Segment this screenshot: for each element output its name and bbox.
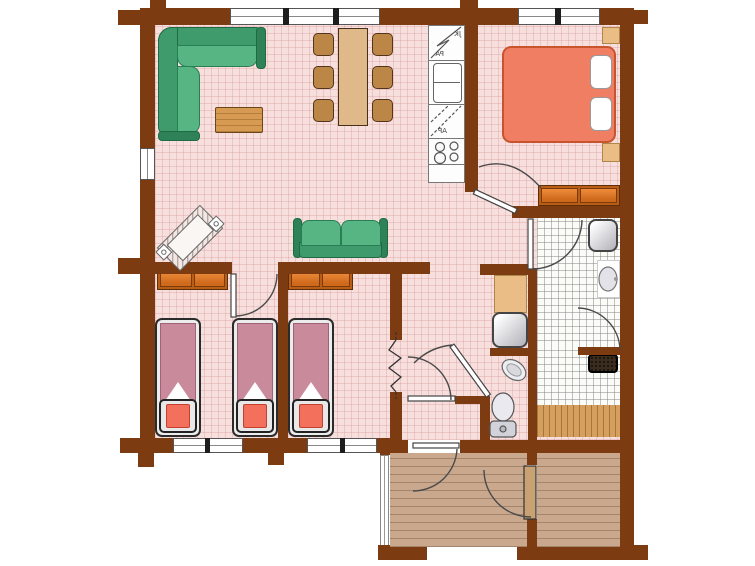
wall-segment	[140, 8, 230, 25]
wall-segment	[278, 274, 288, 438]
fridge-unit	[433, 63, 462, 103]
log-end	[634, 545, 648, 560]
kitchen-unit-divider	[428, 104, 465, 105]
wall-segment	[140, 180, 155, 438]
wall-segment	[140, 438, 173, 453]
kitchen-unit-divider	[428, 138, 465, 139]
washing-machine-hall	[492, 312, 528, 348]
dresser-door	[541, 188, 578, 203]
window-mullion	[205, 438, 210, 453]
log-end	[150, 0, 166, 10]
log-end	[378, 545, 390, 560]
coffee-table	[215, 107, 263, 133]
single-bed-1	[155, 318, 201, 437]
wall-segment	[490, 348, 528, 356]
bed-head-cushion	[299, 404, 323, 428]
bed-head-frame	[292, 399, 330, 433]
log-end	[138, 453, 154, 467]
bed-head-frame	[236, 399, 274, 433]
single-bed-2	[232, 318, 278, 437]
kitchen-unit-divider	[428, 164, 465, 165]
wall-segment	[388, 547, 427, 560]
bed-pillow	[590, 97, 612, 131]
dining-table	[338, 28, 368, 126]
dining-chair	[372, 66, 393, 89]
wall-segment	[390, 274, 402, 340]
bed-pillow	[590, 55, 612, 89]
wall-segment	[480, 396, 490, 440]
hall-cabinet	[494, 275, 527, 313]
window-mullion	[340, 438, 345, 453]
wall-segment	[620, 25, 634, 560]
wall-segment	[517, 547, 634, 560]
washbasin-counter	[597, 260, 620, 298]
bed-head-cushion	[166, 404, 190, 428]
corner-sofa-armrest-right	[256, 27, 266, 69]
bed-head-cushion	[243, 404, 267, 428]
wall-segment	[243, 438, 307, 453]
wall-segment	[455, 396, 480, 404]
wall-segment	[527, 453, 537, 465]
nightstand-bottom	[602, 143, 620, 162]
sofa-seat-right	[341, 220, 381, 246]
wall-segment	[600, 8, 634, 25]
wall-segment	[480, 264, 530, 275]
bedroom-dresser	[538, 185, 620, 206]
sauna-heater	[588, 354, 618, 373]
log-end	[460, 0, 478, 8]
log-end	[268, 453, 284, 465]
log-end	[634, 10, 648, 24]
wall-segment	[465, 8, 478, 192]
wall-segment	[155, 262, 232, 274]
dining-chair	[313, 66, 334, 89]
washing-machine-bathroom	[588, 219, 618, 252]
dining-chair	[313, 33, 334, 56]
wall-segment	[380, 440, 390, 455]
wall-segment	[380, 8, 518, 25]
corner-sofa-back-left	[158, 27, 178, 135]
porch-floor-right	[537, 453, 620, 547]
corner-sofa-seat-vertical	[177, 66, 200, 134]
window-mullion	[555, 8, 561, 25]
window	[140, 148, 155, 180]
window-mullion	[333, 8, 339, 25]
wall-segment	[278, 262, 430, 274]
dresser-door	[580, 188, 617, 203]
sofa-seat-left	[301, 220, 341, 246]
wall-segment	[390, 440, 408, 453]
log-end	[120, 438, 140, 453]
wall-segment	[512, 206, 620, 218]
single-bed-3	[288, 318, 334, 437]
wall-segment	[460, 440, 634, 453]
kitchen-unit-divider	[428, 60, 465, 61]
wall-segment	[578, 347, 620, 355]
wall-segment	[528, 268, 537, 355]
wall-segment	[390, 392, 402, 440]
porch-floor-left	[390, 453, 527, 547]
sauna-bench	[537, 405, 620, 437]
log-end	[118, 258, 140, 274]
wall-segment	[140, 25, 155, 148]
floor-plan: JK PA AP	[0, 0, 755, 566]
porch-edge-rail	[380, 455, 389, 547]
bed-head-frame	[159, 399, 197, 433]
corner-sofa-armrest-bottom	[158, 131, 200, 141]
dining-chair	[372, 33, 393, 56]
log-end	[118, 10, 140, 25]
nightstand-top	[602, 27, 620, 44]
corner-sofa-seat	[177, 45, 258, 67]
fridge-unit-divider	[433, 82, 460, 83]
dining-chair	[313, 99, 334, 122]
wall-segment	[528, 355, 537, 440]
window-mullion	[283, 8, 289, 25]
window	[230, 8, 380, 25]
dining-chair	[372, 99, 393, 122]
